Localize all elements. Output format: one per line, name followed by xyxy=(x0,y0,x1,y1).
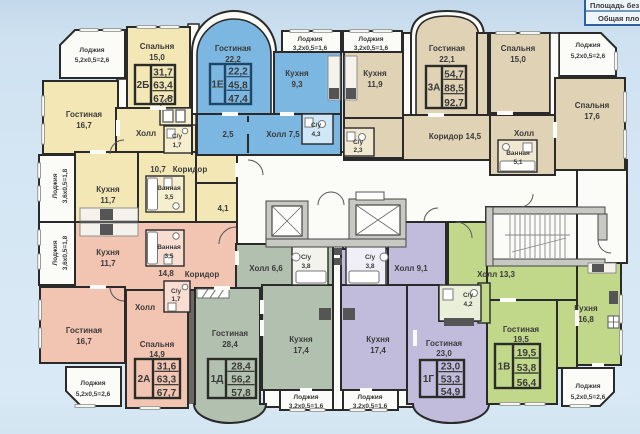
svg-text:С/у: С/у xyxy=(301,254,312,261)
svg-text:Площадь без б: Площадь без б xyxy=(590,1,640,10)
svg-text:Спальня: Спальня xyxy=(140,42,175,51)
svg-text:67,7: 67,7 xyxy=(157,388,177,399)
svg-text:53,3: 53,3 xyxy=(441,374,461,385)
svg-text:4,3: 4,3 xyxy=(311,131,320,138)
svg-text:63,3: 63,3 xyxy=(157,375,177,386)
svg-text:Холл: Холл xyxy=(136,129,156,138)
svg-text:67,8: 67,8 xyxy=(153,94,173,105)
svg-text:11,7: 11,7 xyxy=(100,196,116,205)
svg-text:Кухня: Кухня xyxy=(289,335,313,344)
svg-text:Гостиная: Гостиная xyxy=(426,339,462,348)
svg-text:2Б: 2Б xyxy=(137,80,150,91)
svg-text:Холл: Холл xyxy=(514,129,534,138)
svg-text:2А: 2А xyxy=(138,374,151,385)
svg-text:10,7: 10,7 xyxy=(150,165,166,174)
svg-text:С/у: С/у xyxy=(463,292,474,299)
svg-text:54,7: 54,7 xyxy=(444,69,464,80)
svg-text:23,0: 23,0 xyxy=(441,362,461,373)
svg-text:47,4: 47,4 xyxy=(228,94,248,105)
svg-text:1Е: 1Е xyxy=(211,80,224,91)
svg-text:4,1: 4,1 xyxy=(217,204,229,213)
svg-text:С/у: С/у xyxy=(172,133,183,140)
svg-text:5,1: 5,1 xyxy=(513,159,522,166)
svg-text:22,2: 22,2 xyxy=(225,55,241,64)
svg-text:Ванная: Ванная xyxy=(506,150,530,157)
svg-text:5,2х0,5=2,6: 5,2х0,5=2,6 xyxy=(571,394,606,401)
svg-text:Гостиная: Гостиная xyxy=(429,44,465,53)
svg-text:1Д: 1Д xyxy=(211,374,224,385)
svg-text:1В: 1В xyxy=(498,362,511,373)
svg-text:Кухня: Кухня xyxy=(285,69,309,78)
svg-text:3,2х0,5=1,6: 3,2х0,5=1,6 xyxy=(354,45,389,52)
svg-text:Кухня: Кухня xyxy=(363,69,387,78)
svg-text:Коридор: Коридор xyxy=(185,270,220,279)
svg-text:56,4: 56,4 xyxy=(517,378,537,389)
svg-text:5,2х0,5=2,6: 5,2х0,5=2,6 xyxy=(75,57,110,64)
svg-text:Лоджия: Лоджия xyxy=(81,380,106,387)
svg-text:3,8: 3,8 xyxy=(301,263,310,270)
svg-text:Ванная: Ванная xyxy=(157,244,181,251)
svg-text:15,0: 15,0 xyxy=(510,55,526,64)
svg-text:Коридор: Коридор xyxy=(173,165,208,174)
svg-text:Холл: Холл xyxy=(135,303,155,312)
svg-text:17,6: 17,6 xyxy=(584,112,600,121)
svg-text:Ванная: Ванная xyxy=(157,185,181,192)
svg-text:Лоджия: Лоджия xyxy=(358,394,383,401)
svg-text:63,4: 63,4 xyxy=(153,81,173,92)
svg-text:Спальня: Спальня xyxy=(575,101,610,110)
svg-text:5,2х0,5=2,6: 5,2х0,5=2,6 xyxy=(571,53,606,60)
svg-text:28,4: 28,4 xyxy=(231,361,251,372)
svg-text:3,6х0,5=1,8: 3,6х0,5=1,8 xyxy=(62,235,69,270)
svg-text:23,0: 23,0 xyxy=(436,349,452,358)
svg-text:Лоджия: Лоджия xyxy=(80,47,105,54)
svg-text:Гостиная: Гостиная xyxy=(215,44,251,53)
svg-text:9,3: 9,3 xyxy=(291,80,303,89)
svg-text:19,5: 19,5 xyxy=(517,348,537,359)
svg-text:3,5: 3,5 xyxy=(164,253,173,260)
svg-text:Общая пло: Общая пло xyxy=(598,14,640,23)
svg-text:Спальня: Спальня xyxy=(140,340,175,349)
svg-text:Лоджия: Лоджия xyxy=(294,394,319,401)
svg-text:Кухня: Кухня xyxy=(96,185,120,194)
svg-text:53,8: 53,8 xyxy=(517,363,537,374)
svg-text:88,5: 88,5 xyxy=(444,84,464,95)
svg-text:3,6х0,5=1,8: 3,6х0,5=1,8 xyxy=(62,168,69,203)
svg-text:31,6: 31,6 xyxy=(157,361,177,372)
svg-text:Спальня: Спальня xyxy=(501,44,536,53)
svg-text:Холл 6,6: Холл 6,6 xyxy=(249,264,283,273)
svg-text:1,7: 1,7 xyxy=(172,142,181,149)
svg-text:С/у: С/у xyxy=(353,139,364,146)
svg-text:22,1: 22,1 xyxy=(439,55,455,64)
svg-text:92,7: 92,7 xyxy=(444,98,464,109)
svg-text:Кухня: Кухня xyxy=(366,335,390,344)
svg-text:Гостиная: Гостиная xyxy=(66,110,102,119)
svg-text:3,8: 3,8 xyxy=(365,263,374,270)
svg-text:С/у: С/у xyxy=(311,122,322,129)
svg-text:14,9: 14,9 xyxy=(149,350,165,359)
svg-text:3,2х0,5=1,6: 3,2х0,5=1,6 xyxy=(293,45,328,52)
svg-text:Кухня: Кухня xyxy=(96,248,120,257)
svg-text:31,7: 31,7 xyxy=(153,67,173,78)
svg-text:Лоджия: Лоджия xyxy=(298,36,323,43)
svg-text:Лоджия: Лоджия xyxy=(576,383,601,390)
svg-text:2,3: 2,3 xyxy=(353,147,362,154)
svg-text:19,5: 19,5 xyxy=(513,335,529,344)
svg-text:Гостиная: Гостиная xyxy=(503,325,539,334)
svg-text:17,4: 17,4 xyxy=(293,346,309,355)
svg-text:45,8: 45,8 xyxy=(228,80,248,91)
svg-text:Холл 9,1: Холл 9,1 xyxy=(394,264,428,273)
svg-text:Гостиная: Гостиная xyxy=(66,326,102,335)
svg-text:16,7: 16,7 xyxy=(76,121,92,130)
svg-text:Лоджия: Лоджия xyxy=(576,42,601,49)
svg-text:5,2х0,5=2,6: 5,2х0,5=2,6 xyxy=(76,391,111,398)
svg-text:14,8: 14,8 xyxy=(158,269,174,278)
svg-text:Холл 7,5: Холл 7,5 xyxy=(266,130,300,139)
svg-text:16,8: 16,8 xyxy=(578,315,594,324)
svg-text:57,8: 57,8 xyxy=(231,388,251,399)
svg-text:Гостиная: Гостиная xyxy=(212,329,248,338)
svg-text:15,0: 15,0 xyxy=(149,53,165,62)
svg-text:1Г: 1Г xyxy=(423,374,435,385)
svg-text:16,7: 16,7 xyxy=(76,337,92,346)
svg-text:2,5: 2,5 xyxy=(222,130,234,139)
svg-text:С/у: С/у xyxy=(365,254,376,261)
svg-text:Лоджия: Лоджия xyxy=(52,240,59,265)
svg-text:Лоджия: Лоджия xyxy=(359,36,384,43)
svg-text:С/у: С/у xyxy=(171,288,182,295)
svg-text:17,4: 17,4 xyxy=(370,346,386,355)
svg-text:3,5: 3,5 xyxy=(164,194,173,201)
svg-text:1,7: 1,7 xyxy=(171,296,180,303)
svg-text:Лоджия: Лоджия xyxy=(52,173,59,198)
svg-text:54,9: 54,9 xyxy=(441,387,461,398)
svg-text:Холл 13,3: Холл 13,3 xyxy=(477,270,515,279)
svg-text:11,9: 11,9 xyxy=(367,80,383,89)
svg-text:56,2: 56,2 xyxy=(231,375,251,386)
svg-text:22,2: 22,2 xyxy=(228,67,248,78)
svg-text:3А: 3А xyxy=(428,83,441,94)
svg-text:11,7: 11,7 xyxy=(100,259,116,268)
svg-text:28,4: 28,4 xyxy=(222,340,238,349)
svg-text:4,2: 4,2 xyxy=(463,301,472,308)
svg-text:Коридор 14,5: Коридор 14,5 xyxy=(429,132,482,141)
